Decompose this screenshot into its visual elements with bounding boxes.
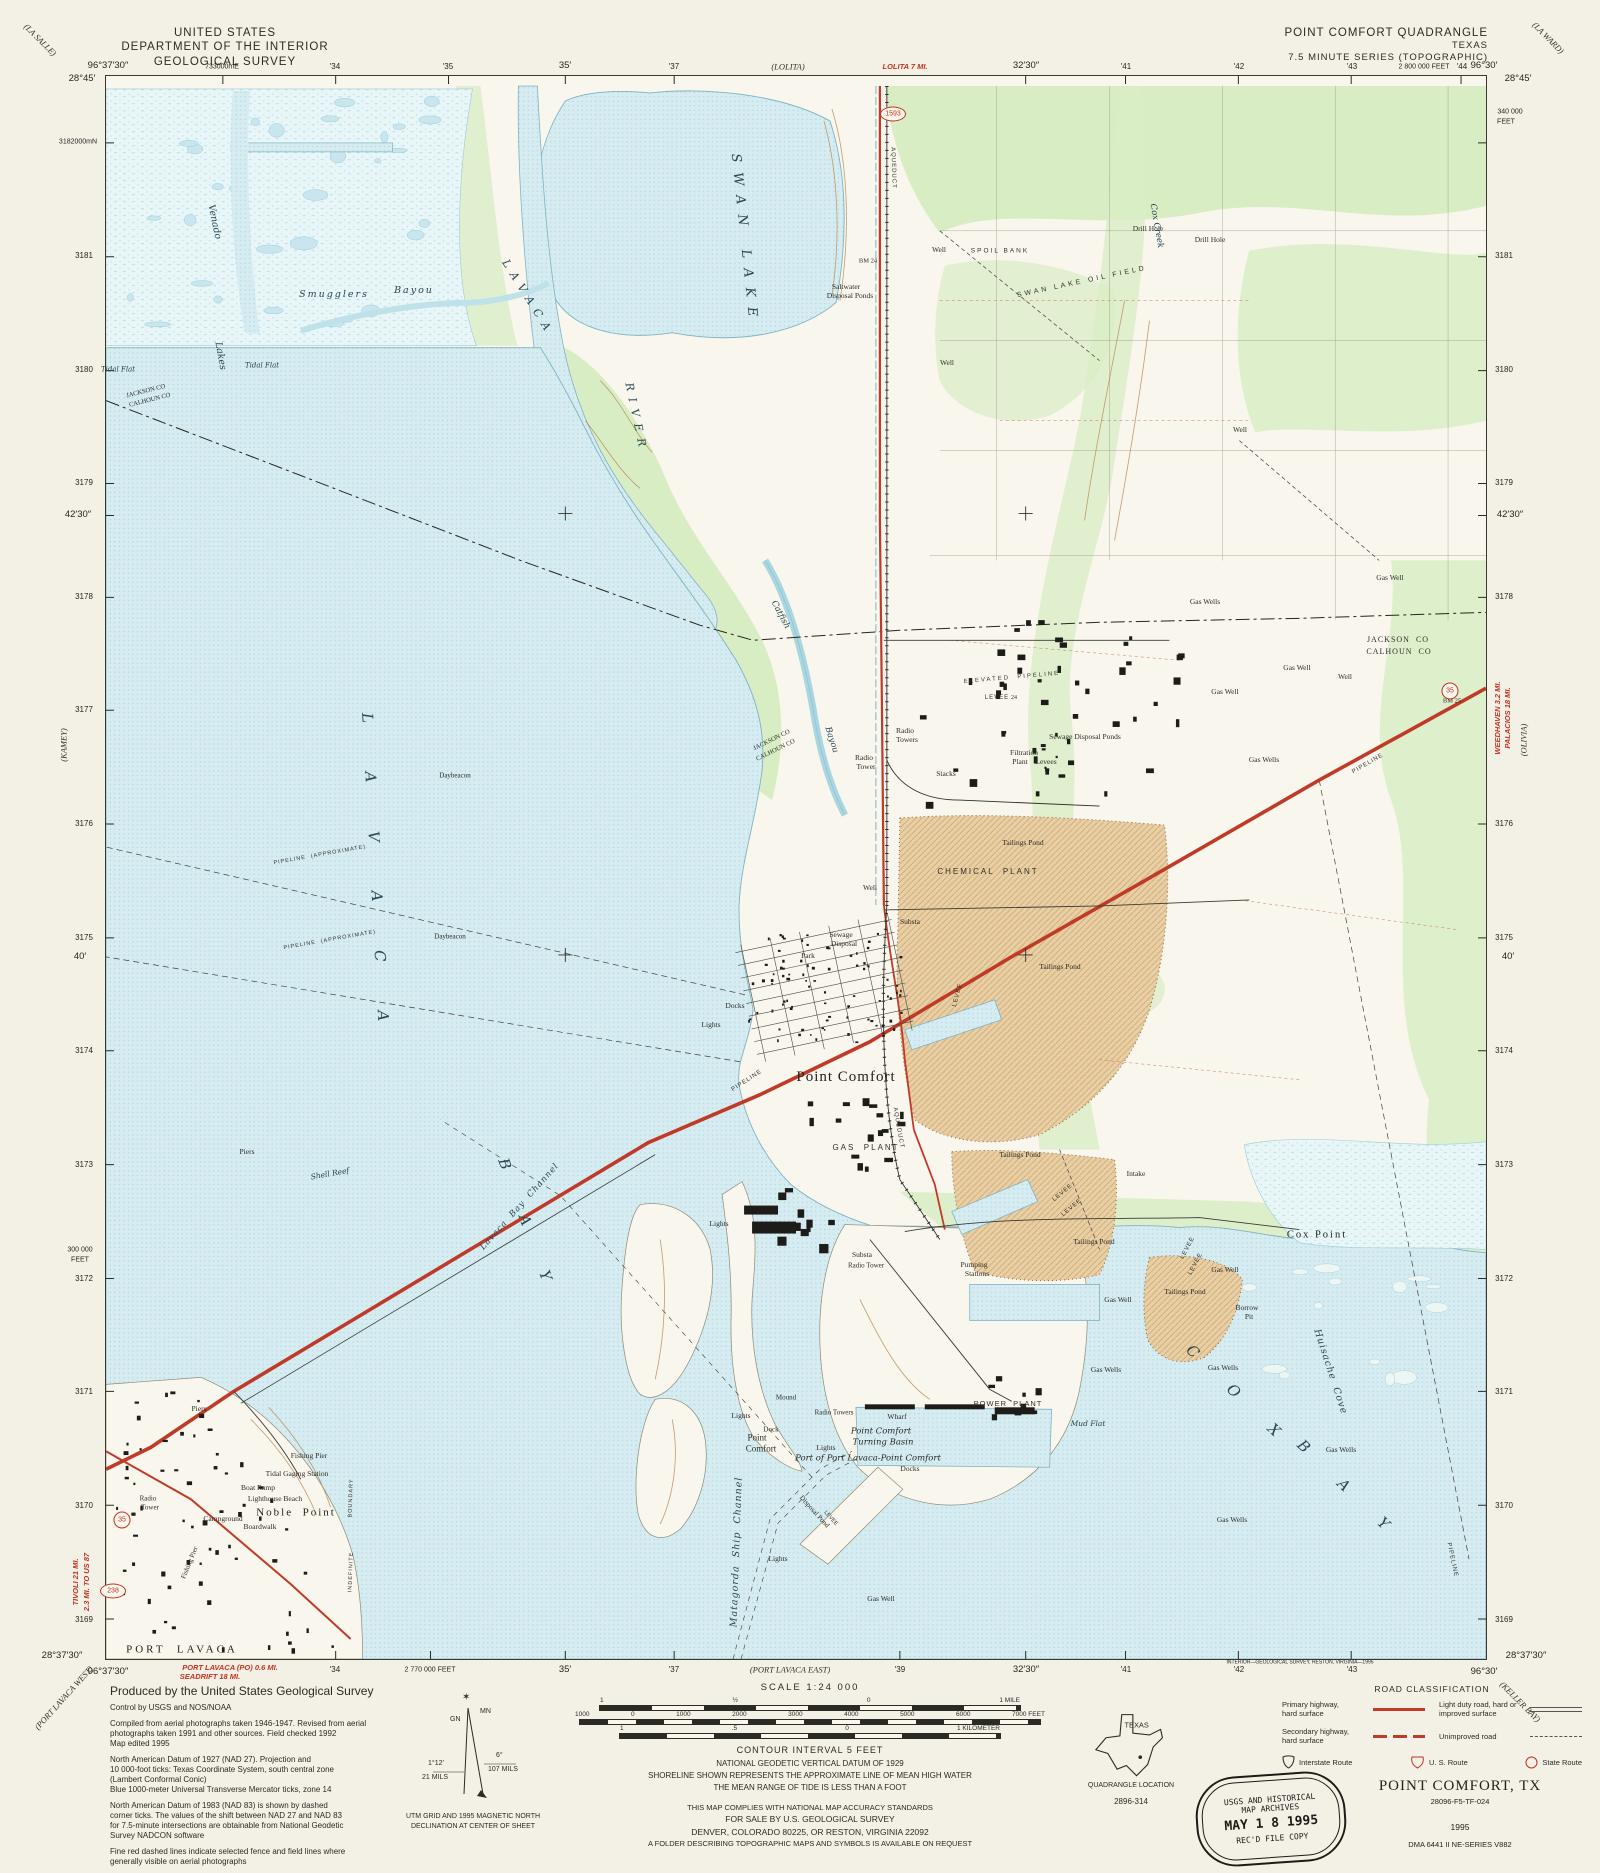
dredged-canal <box>231 143 393 152</box>
map-label: (PORT LAVACA WEST) <box>33 1664 95 1731</box>
map-label: Disposal <box>831 940 857 948</box>
scale-feet-label: 1000 <box>676 1711 690 1718</box>
map-label: ′43 <box>1347 63 1357 71</box>
agency-line: DEPARTMENT OF THE INTERIOR <box>60 40 390 54</box>
map-label: Dock <box>763 1426 778 1433</box>
map-label: (OLIVIA) <box>1520 724 1529 757</box>
map-label: 3181 <box>75 252 93 260</box>
map-label: 340 000 <box>1497 108 1522 115</box>
map-label: 28°37′30″ <box>1506 1651 1547 1661</box>
star-icon: ✶ <box>462 1692 470 1703</box>
quad-name: POINT COMFORT QUADRANGLE <box>1068 26 1488 40</box>
map-label: 3179 <box>75 479 93 487</box>
map-label: Lights <box>701 1021 720 1029</box>
map-label: Radio Tower <box>848 1262 884 1269</box>
scale-feet-label: 0 <box>631 1711 635 1718</box>
map-label: FEET <box>1497 118 1515 125</box>
map-label: Turning Basin <box>853 1439 914 1448</box>
map-label: Radio <box>140 1495 157 1502</box>
map-label: (LOLITA) <box>771 63 804 72</box>
map-label: Well <box>1338 673 1352 681</box>
map-label: Lights <box>816 1444 835 1452</box>
map-label: Lighthouse Beach <box>248 1495 302 1503</box>
map-label: ′42 <box>1234 1666 1244 1674</box>
scale-feet-label: 4000 <box>844 1711 858 1718</box>
map-label: Disposal Ponds <box>827 292 873 300</box>
map-label: 3182000mN <box>59 138 97 145</box>
map-label: 3176 <box>1495 820 1513 828</box>
map-label: Gas Wells <box>1217 1516 1247 1524</box>
map-label: Pumping <box>960 1261 987 1269</box>
map-label: 96°30′ <box>1471 61 1498 71</box>
map-label: Boardwalk <box>244 1523 277 1531</box>
map-label: ′43 <box>1347 1666 1357 1674</box>
map-label: Tidal Gaging Station <box>266 1470 329 1478</box>
map-label: ′37 <box>669 63 679 71</box>
sheet-series: DMA 6441 II NE-SERIES V882 <box>1330 1840 1590 1849</box>
map-label: Gas Wells <box>1326 1446 1356 1454</box>
map-label: BM 24 <box>859 259 877 266</box>
map-label: Noble Point <box>256 1507 336 1518</box>
map-label: Tidal Flat <box>245 362 279 369</box>
interstate-shield-icon <box>1282 1755 1295 1769</box>
map-label: Gas Well <box>867 1595 894 1603</box>
unimproved-road-label: Unimproved road <box>1439 1732 1524 1741</box>
us-route-shield-icon <box>1410 1756 1425 1769</box>
quad-title-block: POINT COMFORT QUADRANGLE TEXAS 7.5 MINUT… <box>1068 26 1488 64</box>
quad-location-dot <box>1138 1755 1142 1759</box>
scale-km-label: 0 <box>845 1725 849 1732</box>
map-label: Stations <box>965 1270 989 1278</box>
map-label: (KAMEY) <box>60 728 69 762</box>
map-label: ′41 <box>1121 63 1131 71</box>
credit-paragraph: Compiled from aerial photographs taken 1… <box>110 1719 410 1749</box>
scale-feet-label: 1000 <box>575 1711 589 1718</box>
sheet-title-block: POINT COMFORT, TX 28096-F5-TF-024 1995 D… <box>1330 1778 1590 1849</box>
sheet-ref-code: 28096-F5-TF-024 <box>1330 1797 1590 1806</box>
declination-lines <box>388 1694 558 1809</box>
map-label: TIVOLI 21 MI. <box>72 1558 80 1605</box>
map-label: Saltwater <box>832 283 860 291</box>
map-label: 32′30″ <box>1013 61 1039 71</box>
gn-mils: 21 MILS <box>422 1774 448 1781</box>
scale-feet-label: 3000 <box>788 1711 802 1718</box>
texas-label: TEXAS <box>1125 1721 1149 1730</box>
sheet-year: 1995 <box>1330 1822 1590 1832</box>
map-label: Mud Flat <box>1071 1420 1106 1428</box>
sheet-code: 2896-314 <box>1072 1797 1190 1806</box>
map-label: Tower <box>856 763 875 771</box>
map-label: Radio <box>896 727 914 735</box>
map-label: ′37 <box>669 1666 679 1674</box>
road-class-title: ROAD CLASSIFICATION <box>1282 1684 1582 1694</box>
map-label: ′35 <box>443 63 453 71</box>
map-label: Gas Wells <box>1091 1366 1121 1374</box>
map-label: 3169 <box>1495 1616 1513 1624</box>
map-label: 3170 <box>75 1502 93 1510</box>
primary-highway-label: Primary highway, hard surface <box>1282 1700 1367 1718</box>
secondary-highway-sample <box>1373 1735 1425 1738</box>
unimproved-road-sample <box>1530 1736 1582 1737</box>
map-label: Mound <box>776 1394 796 1401</box>
map-label: 2 800 000 FEET <box>1399 63 1450 70</box>
map-label: Point Comfort <box>796 1070 895 1086</box>
sale-line-2: DENVER, COLORADO 80225, OR RESTON, VIRGI… <box>545 1826 1075 1839</box>
scale-mile-label: ½ <box>733 1697 738 1704</box>
primary-highway-sample <box>1373 1708 1425 1711</box>
map-label: FEET <box>71 1256 89 1263</box>
archive-stamp: USGS AND HISTORICAL MAP ARCHIVES MAY 1 8… <box>1193 1769 1349 1869</box>
map-label: Well <box>863 884 877 892</box>
gn-label: GN <box>450 1716 461 1723</box>
map-label: ′39 <box>895 1666 905 1674</box>
mile-bar-labels: 1½01 MILE <box>600 1697 1020 1704</box>
map-label: Park <box>801 952 815 960</box>
map-label: Piers <box>192 1405 207 1413</box>
map-label: PALACIOS 18 MI. <box>1504 687 1512 748</box>
map-label: Point <box>747 1433 766 1442</box>
km-bar <box>619 1733 1001 1739</box>
map-label: Lights <box>731 1412 750 1420</box>
road-classification: ROAD CLASSIFICATION Primary highway, har… <box>1282 1684 1582 1769</box>
map-label: Well <box>1233 426 1247 434</box>
map-label: Gas Wells <box>1208 1364 1238 1372</box>
map-label: JACKSON CO <box>1367 636 1429 644</box>
map-label: Piers <box>240 1148 255 1156</box>
scale-feet-label: 5000 <box>900 1711 914 1718</box>
map-label: Bayou <box>394 286 434 296</box>
map-label: Levees <box>1035 758 1056 766</box>
map-label: Gas Well <box>1104 1296 1131 1304</box>
accuracy-note: THIS MAP COMPLIES WITH NATIONAL MAP ACCU… <box>545 1802 1075 1813</box>
map-label: 3180 <box>75 366 93 374</box>
map-label: 3169 <box>75 1616 93 1624</box>
mn-value: 6° <box>496 1752 503 1759</box>
map-label: Port of Port Lavaca-Point Comfort <box>795 1455 941 1464</box>
map-label: Radio <box>855 754 873 762</box>
map-label: 3172 <box>1495 1275 1513 1283</box>
credit-paragraph: North American Datum of 1983 (NAD 83) is… <box>110 1801 410 1841</box>
map-label: 3175 <box>1495 934 1513 942</box>
texas-outline-icon: TEXAS <box>1094 1712 1168 1782</box>
scale-feet-label: 7000 FEET <box>1012 1711 1045 1718</box>
shoreline-note-2: THE MEAN RANGE OF TIDE IS LESS THAN A FO… <box>545 1782 1075 1794</box>
map-label: 3178 <box>75 593 93 601</box>
map-label: Tailings Pond <box>1002 839 1043 847</box>
light-duty-label: Light duty road, hard or improved surfac… <box>1439 1700 1524 1718</box>
scale-mile-label: 1 <box>600 1697 604 1704</box>
agency-line: UNITED STATES <box>60 26 390 40</box>
map-label: 32′30″ <box>1013 1665 1039 1675</box>
map-label: 42′30″ <box>1497 510 1523 520</box>
map-label: 2 770 000 FEET <box>405 1666 456 1673</box>
map-label: (LA SALLE) <box>22 22 58 58</box>
us-route-label: U. S. Route <box>1429 1758 1468 1767</box>
credit-paragraph: Control by USGS and NOS/NOAA <box>110 1703 410 1713</box>
feet-bar-labels: 100001000200030004000500060007000 FEET <box>575 1711 1045 1718</box>
map-label: Daybeacon <box>439 772 470 779</box>
state-route-label: State Route <box>1542 1758 1582 1767</box>
map-label: (LA WARD) <box>1531 21 1566 56</box>
scale-km-label: 1 KILOMETER <box>957 1725 1000 1732</box>
gn-value: 1°12′ <box>428 1760 444 1767</box>
map-label: Stacks <box>936 770 956 778</box>
map-label: Tailings Pond <box>1073 1238 1114 1246</box>
map-label: Sewage <box>829 931 852 939</box>
swan-lake <box>535 91 844 338</box>
map-label: PORT LAVACA <box>126 1644 238 1655</box>
map-label: Drill Hole <box>1133 225 1164 233</box>
map-label: 3177 <box>75 706 93 714</box>
credits-block: Produced by the United States Geological… <box>110 1684 410 1873</box>
scale-block: SCALE 1:24 000 1½01 MILE 100001000200030… <box>545 1682 1075 1850</box>
map-label: Tower <box>141 1504 159 1511</box>
map-label: 2.3 MI. TO US 87 <box>83 1553 91 1611</box>
map-label: 28°37′30″ <box>42 1651 83 1661</box>
map-label: Wharf <box>887 1413 906 1421</box>
map-label: Point Comfort <box>851 1428 911 1437</box>
scale-mile-label: 1 MILE <box>999 1697 1020 1704</box>
map-label: 96°37′30″ <box>88 61 129 71</box>
map-label: 3174 <box>75 1047 93 1055</box>
map-label: CALHOUN CO <box>1366 648 1431 656</box>
map-label: 42′30″ <box>65 510 91 520</box>
map-label: 3179 <box>1495 479 1513 487</box>
map-label: Drill Hole <box>1195 236 1226 244</box>
map-label: POWER PLANT <box>974 1400 1043 1408</box>
map-label: Borrow <box>1236 1304 1259 1312</box>
produced-by: Produced by the United States Geological… <box>110 1684 410 1699</box>
scale-mile-label: 0 <box>867 1697 871 1704</box>
map-label: 96°30′ <box>1471 1667 1498 1677</box>
map-label: 3175 <box>75 934 93 942</box>
map-label: Gas Well <box>1211 688 1238 696</box>
map-label: Lights <box>709 1220 728 1228</box>
map-label: Gas Well <box>1283 664 1310 672</box>
map-label: 40′ <box>74 952 86 962</box>
mn-mils: 107 MILS <box>488 1766 518 1773</box>
map-label: ′42 <box>1234 63 1244 71</box>
map-label: ′34 <box>330 1666 340 1674</box>
quad-location-caption: QUADRANGLE LOCATION <box>1072 1782 1190 1789</box>
map-label: 3171 <box>75 1388 93 1396</box>
map-label: WEEDHAVEN 3.2 MI. <box>1494 681 1502 754</box>
map-label: Lights <box>768 1555 787 1563</box>
sale-line-3: A FOLDER DESCRIBING TOPOGRAPHIC MAPS AND… <box>545 1838 1075 1849</box>
map-label: SPOIL BANK <box>971 249 1029 256</box>
map-label: 3170 <box>1495 1502 1513 1510</box>
sale-line-1: FOR SALE BY U.S. GEOLOGICAL SURVEY <box>545 1813 1075 1826</box>
map-label: 28°45′ <box>69 74 96 84</box>
map-label: Sewage Disposal Ponds <box>1049 733 1121 741</box>
map-label: Gas Wells <box>1249 756 1279 764</box>
map-label: Docks <box>725 1002 744 1010</box>
map-label: 35′ <box>559 61 571 71</box>
map-label: Pit <box>1245 1313 1253 1321</box>
map-label: Docks <box>900 1465 919 1473</box>
map-label: 3176 <box>75 820 93 828</box>
map-label: Well <box>932 246 946 254</box>
scale-km-label: 1 <box>620 1725 624 1732</box>
scale-feet-label: 6000 <box>956 1711 970 1718</box>
route-shield: 35 <box>1442 683 1459 700</box>
map-label: 3181 <box>1495 252 1513 260</box>
km-bar-labels: 1.501 KILOMETER <box>620 1725 1000 1732</box>
map-label: 3174 <box>1495 1047 1513 1055</box>
map-label: Filtration <box>1010 749 1038 757</box>
map-label: ′41 <box>1121 1666 1131 1674</box>
quad-state: TEXAS <box>1068 40 1488 52</box>
mn-label: MN <box>480 1708 491 1715</box>
map-label: Tidal Flat <box>101 366 135 373</box>
map-label: (PORT LAVACA EAST) <box>750 1666 830 1675</box>
map-label: Substa <box>852 1251 872 1259</box>
map-label: ′34 <box>330 63 340 71</box>
map-label: Tailings Pond <box>999 1151 1040 1159</box>
secondary-highway-label: Secondary highway, hard surface <box>1282 1727 1367 1745</box>
map-label: Comfort <box>746 1444 777 1453</box>
light-duty-sample <box>1530 1707 1582 1712</box>
map-label: Gas Wells <box>1190 598 1220 606</box>
map-label: Towers <box>896 736 918 744</box>
quadrangle-location: TEXAS QUADRANGLE LOCATION 2896-314 <box>1072 1712 1190 1806</box>
state-route-circle-icon <box>1525 1756 1538 1769</box>
declination-caption: UTM GRID AND 1995 MAGNETIC NORTH DECLINA… <box>388 1812 558 1832</box>
map-label: 3173 <box>75 1161 93 1169</box>
map-label: Daybeacon <box>434 933 465 940</box>
map-label: Tailings Pond <box>1039 963 1080 971</box>
map-label: 28°45′ <box>1505 74 1532 84</box>
map-label: 40′ <box>1502 952 1514 962</box>
scale-feet-label: 2000 <box>732 1711 746 1718</box>
route-shield: 35 <box>114 1512 131 1529</box>
map-label: 733000mE <box>205 63 239 70</box>
map-label: LEVEE <box>985 695 1009 701</box>
map-label: Tailings Pond <box>1164 1288 1205 1296</box>
interstate-route-label: Interstate Route <box>1299 1758 1352 1767</box>
contour-note: CONTOUR INTERVAL 5 FEET <box>545 1744 1075 1758</box>
map-label: CHEMICAL PLANT <box>937 868 1038 876</box>
map-label: 3172 <box>75 1275 93 1283</box>
map-label: 3178 <box>1495 593 1513 601</box>
map-label: 35′ <box>559 1665 571 1675</box>
map-label: Cox Point <box>1287 1231 1347 1242</box>
scale-km-label: .5 <box>732 1725 737 1732</box>
map-label: GAS PLANT <box>832 1144 899 1152</box>
declination-diagram: ✶ GN MN 1°12′ 21 MILS 6° 107 MILS UTM GR… <box>388 1694 558 1834</box>
map-label: Substa <box>900 918 920 926</box>
map-label: 3173 <box>1495 1161 1513 1169</box>
credit-paragraph: North American Datum of 1927 (NAD 27). P… <box>110 1755 410 1795</box>
map-label: LOLITA 7 MI. <box>883 63 928 71</box>
route-shield: 238 <box>100 1584 126 1599</box>
map-label: 300 000 <box>67 1246 92 1253</box>
route-shield: 1593 <box>880 107 906 122</box>
map-label: 3171 <box>1495 1388 1513 1396</box>
credit-paragraph: Fine red dashed lines indicate selected … <box>110 1847 410 1867</box>
shoreline-note-1: SHORELINE SHOWN REPRESENTS THE APPROXIMA… <box>545 1770 1075 1782</box>
datum-note: NATIONAL GEODETIC VERTICAL DATUM OF 1929 <box>545 1758 1075 1770</box>
map-label: Well <box>940 359 954 367</box>
map-label: Gas Well <box>1376 574 1403 582</box>
map-label: 24 <box>1011 695 1017 701</box>
sheet-name: POINT COMFORT, TX <box>1330 1778 1590 1795</box>
map-sheet: UNITED STATES DEPARTMENT OF THE INTERIOR… <box>0 0 1600 1871</box>
map-label: 3180 <box>1495 366 1513 374</box>
map-label: Gas Well <box>1211 1266 1238 1274</box>
map-label: ′44 <box>1457 63 1467 71</box>
scale-title: SCALE 1:24 000 <box>545 1682 1075 1693</box>
map-label: Intake <box>1127 1170 1146 1178</box>
map-label: Fishing Pier <box>291 1452 327 1460</box>
map-label: PORT LAVACA (PO) 0.6 MI. <box>182 1664 278 1672</box>
credit-paragraphs: Control by USGS and NOS/NOAACompiled fro… <box>110 1703 410 1867</box>
map-label: Radio Towers <box>815 1409 854 1416</box>
map-label: Smugglers <box>299 290 369 300</box>
map-label: Boat Ramp <box>241 1484 275 1492</box>
map-label: BM 25 <box>1443 699 1461 706</box>
map-label: Campground <box>203 1515 242 1523</box>
map-label: SEADRIFT 18 MI. <box>180 1673 240 1681</box>
map-label: Plant <box>1012 758 1027 766</box>
